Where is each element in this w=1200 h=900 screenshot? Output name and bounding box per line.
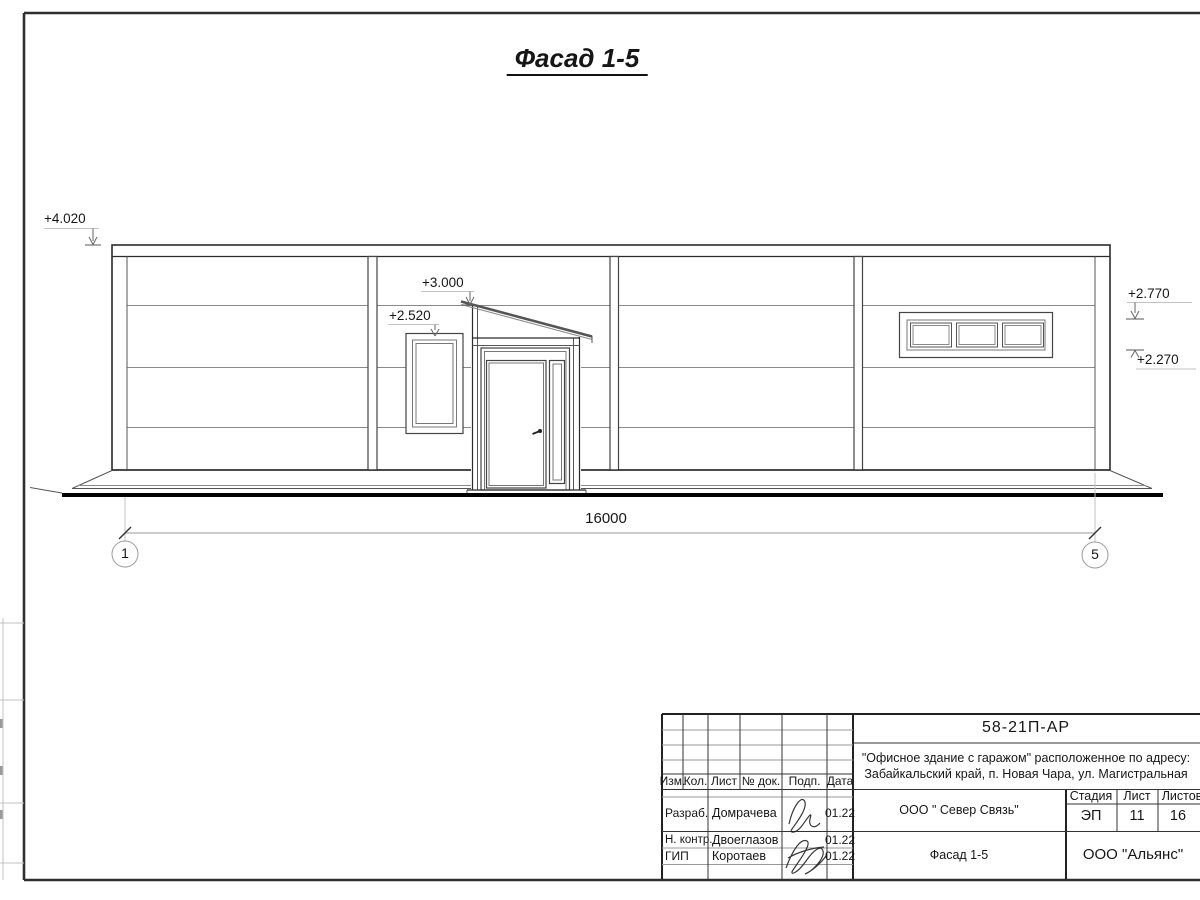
sheet-name: Фасад 1-5 (930, 849, 989, 863)
role-2-label: ГИП (665, 850, 689, 863)
dimension-value: 16000 (585, 511, 627, 528)
col-header-doc: № док. (742, 775, 780, 788)
view-title: Фасад 1-5 (507, 44, 648, 76)
role-1-label: Н. контр. (665, 834, 712, 847)
role-2-name: Коротаев (712, 850, 766, 864)
col-header-kol: Кол. (684, 775, 708, 788)
door-sidelight (550, 361, 565, 484)
window-ribbon (900, 313, 1053, 358)
col-header-izm: Изм. (660, 775, 686, 788)
sheets-value: 16 (1170, 809, 1186, 825)
sheet-label: Лист (1123, 790, 1150, 804)
sheets-label: Листов (1162, 790, 1200, 804)
margin-mark (0, 719, 3, 728)
elevation-canopy: +3.000 (422, 276, 464, 291)
plinth (72, 470, 1152, 489)
doc-number: 58-21П-АР (982, 719, 1070, 737)
elevation-parapet: +4.020 (44, 212, 86, 227)
sheet-value: 11 (1129, 809, 1144, 825)
stage-value: ЭП (1081, 809, 1102, 825)
margin-mark (0, 766, 3, 775)
window-left (406, 334, 463, 434)
signature-korotaev (786, 841, 826, 874)
stage-label: Стадия (1070, 790, 1113, 804)
role-1-date: 01.22 (825, 834, 855, 847)
axis-label-5: 5 (1091, 547, 1099, 562)
elevation-ribbon-sill: +2.270 (1137, 353, 1179, 368)
role-1-name: Двоеглазов (712, 834, 778, 848)
door-leaf (487, 361, 547, 489)
entrance-door (467, 348, 586, 496)
axis-label-1: 1 (121, 546, 129, 561)
col-header-list: Лист (711, 775, 737, 788)
margin-mark (0, 810, 3, 819)
project-address-line1: "Офисное здание с гаражом" расположенное… (862, 752, 1190, 766)
left-margin-marks (0, 618, 24, 880)
role-0-label: Разраб. (665, 807, 708, 820)
drawing-sheet: Фасад 1-5 +4.020 +3.000 +2.520 +2.770 +2… (0, 0, 1200, 900)
elevation-ribbon-head: +2.770 (1128, 287, 1170, 302)
company-name: ООО "Альянс" (1083, 847, 1183, 864)
role-2-date: 01.22 (825, 850, 855, 863)
elevation-window-head: +2.520 (389, 309, 431, 324)
signatures (786, 799, 826, 874)
role-0-name: Домрачева (712, 807, 777, 821)
role-0-date: 01.22 (825, 807, 855, 820)
signature-domracheva (789, 799, 820, 832)
project-address-line2: Забайкальский край, п. Новая Чара, ул. М… (864, 768, 1187, 782)
col-header-podp: Подп. (789, 775, 821, 788)
col-header-data: Дата (827, 775, 854, 788)
facade-elevation (30, 245, 1163, 496)
client-name: ООО " Север Связь" (899, 804, 1018, 818)
